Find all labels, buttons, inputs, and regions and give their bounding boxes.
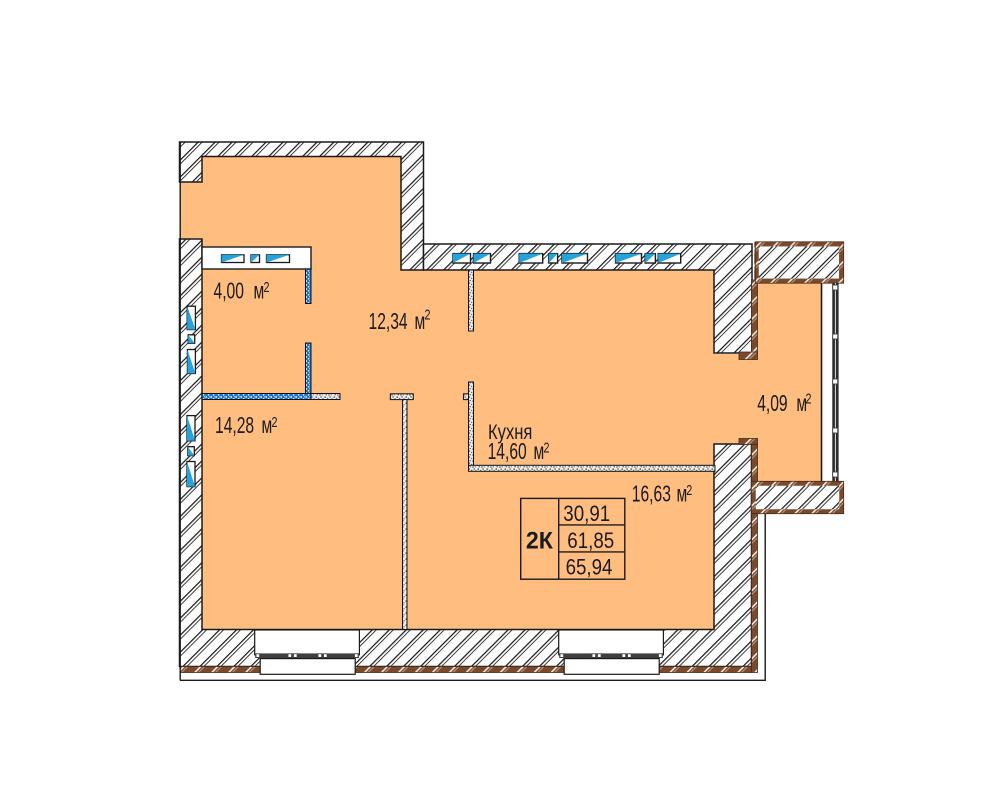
svg-text:65,94: 65,94	[566, 555, 613, 580]
svg-text:12,34: 12,34	[369, 309, 408, 335]
svg-text:16,63: 16,63	[632, 482, 671, 508]
svg-text:2: 2	[686, 481, 692, 498]
svg-text:м: м	[254, 279, 265, 305]
svg-text:м: м	[262, 413, 273, 439]
svg-text:2: 2	[806, 390, 812, 407]
svg-text:4,00: 4,00	[214, 279, 244, 305]
svg-text:2: 2	[272, 413, 278, 430]
svg-text:2: 2	[264, 278, 270, 295]
svg-text:2: 2	[544, 439, 550, 456]
svg-text:14,28: 14,28	[215, 413, 254, 439]
svg-text:2: 2	[425, 306, 431, 323]
svg-text:4,09: 4,09	[757, 391, 787, 417]
svg-text:м: м	[534, 439, 545, 465]
svg-text:2К: 2К	[526, 527, 553, 555]
svg-text:14,60: 14,60	[488, 439, 527, 465]
svg-text:30,91: 30,91	[563, 501, 610, 526]
svg-text:м: м	[415, 309, 426, 335]
svg-text:61,85: 61,85	[567, 528, 614, 553]
